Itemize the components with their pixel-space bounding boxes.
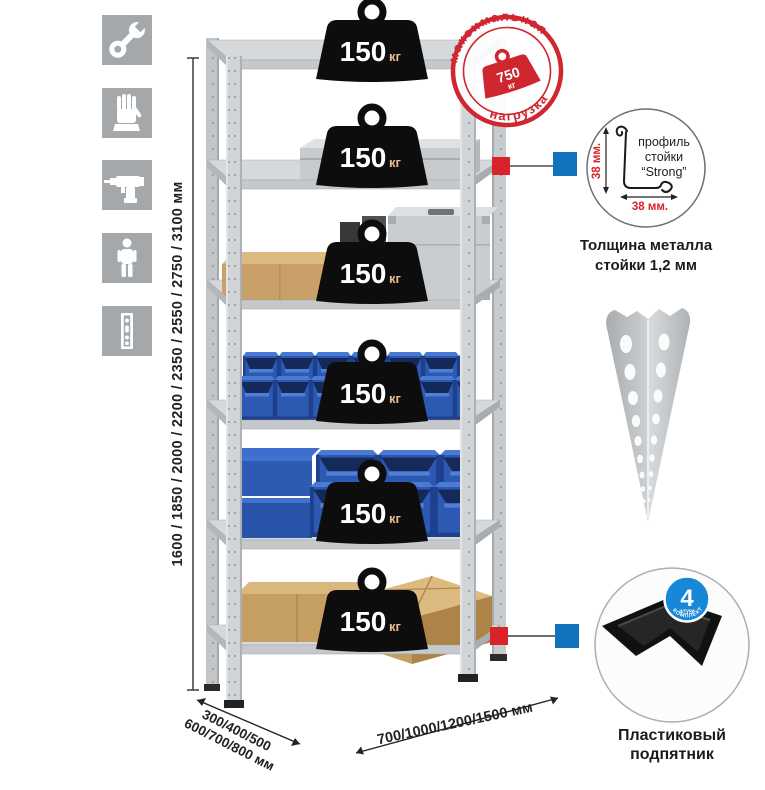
max-load-stamp: 750 кг максимальная нагрузка (435, 0, 577, 140)
plastic-foot-caption: Пластиковый подпятник (586, 726, 758, 764)
load-unit: кг (389, 511, 402, 526)
metal-thickness-caption: Толщина металла стойки 1,2 мм (558, 236, 734, 275)
red-marker-square (490, 627, 508, 645)
profile-label-1: профиль (638, 135, 690, 149)
load-value: 150 (340, 36, 387, 67)
load-value: 150 (340, 258, 387, 289)
red-marker-square (492, 157, 510, 175)
load-unit: кг (389, 619, 402, 634)
rack-infographic-page: { "colors": { "accent_red": "#d8232a", "… (0, 0, 765, 765)
load-value: 150 (340, 142, 387, 173)
profile-label-2: стойки (645, 150, 683, 164)
back-left-post (204, 38, 220, 691)
caption-line: стойки 1,2 мм (558, 256, 734, 276)
infographic-canvas: 150 кг 150 кг 150 кг 150 кг 150 кг (0, 0, 765, 765)
caption-line: Толщина металла (558, 236, 734, 256)
height-dimension-line (187, 58, 199, 690)
profile-width-dim: 38 мм. (632, 201, 668, 213)
load-unit: кг (389, 49, 402, 64)
shelving-rack: 150 кг 150 кг 150 кг 150 кг 150 кг (204, 1, 507, 708)
post-profile-callout: 38 мм. 38 мм. профиль стойки “Strong” (587, 109, 705, 227)
corner-post-image (606, 308, 690, 522)
load-unit: кг (389, 271, 402, 286)
load-value: 150 (340, 498, 387, 529)
profile-label-3: “Strong” (641, 165, 686, 179)
load-unit: кг (389, 391, 402, 406)
blue-marker-square (553, 152, 577, 176)
blue-marker-square (555, 624, 579, 648)
load-unit: кг (389, 155, 402, 170)
caption-line: Пластиковый (586, 726, 758, 745)
front-left-post (224, 56, 244, 708)
height-dimension-label: 1600 / 1850 / 2000 / 2200 / 2350 / 2550 … (170, 74, 186, 674)
profile-height-dim: 38 мм. (591, 143, 603, 179)
foot-callout-marker (490, 624, 579, 648)
front-right-post (458, 56, 478, 682)
blue-containers (230, 448, 320, 538)
height-values: 1600 / 1850 / 2000 / 2200 / 2350 / 2550 … (170, 182, 186, 567)
load-value: 150 (340, 378, 387, 409)
shelf-load-badge-1: 150 кг (316, 1, 428, 82)
back-right-post (490, 36, 507, 661)
caption-line: подпятник (586, 745, 758, 764)
load-value: 150 (340, 606, 387, 637)
shelf-load-badge-2: 150 кг (316, 107, 428, 188)
